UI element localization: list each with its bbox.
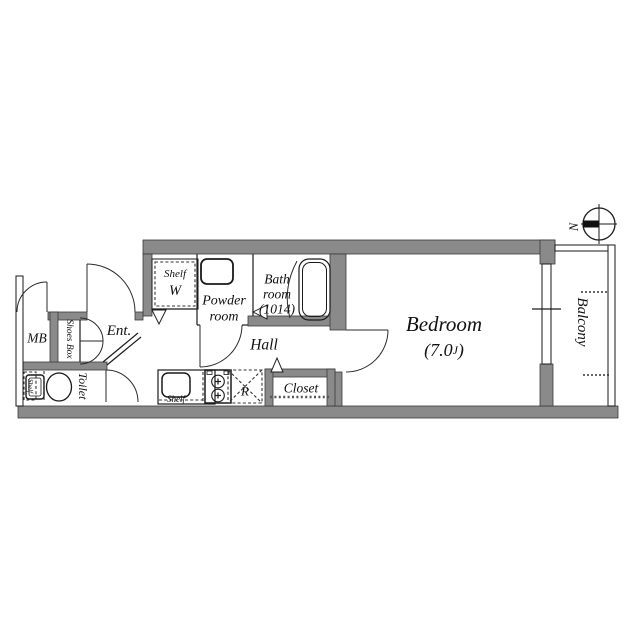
shoes-box-door-arc-upper xyxy=(80,318,103,341)
laundry-threshold-triangle xyxy=(152,310,166,324)
wall-segment-toilet-top xyxy=(18,362,107,370)
wall-segment-window-top-stub xyxy=(540,240,555,264)
entrance-label: Ent. xyxy=(106,323,132,339)
entrance-step-line-b xyxy=(107,337,141,365)
hall-label: Hall xyxy=(249,337,278,354)
bath-room-label-line1: Bath xyxy=(264,272,290,287)
wall-segment-top xyxy=(143,240,555,254)
bath-room-label-line3: (1014) xyxy=(259,302,295,317)
wall-segment-laundry-left xyxy=(143,254,152,316)
bedroom-door-arc xyxy=(346,330,388,372)
wall-segment-closet-right xyxy=(327,369,335,406)
compass-north-pointer xyxy=(583,221,599,228)
shoes-box-label: Shoes Box xyxy=(64,319,74,359)
bath-room-label-line2: room xyxy=(263,287,291,302)
toilet-label: Toilet xyxy=(76,373,90,401)
balcony-wall-right xyxy=(608,245,615,406)
powder-sink xyxy=(201,259,233,284)
laundry-shelf-label: Shelf xyxy=(164,268,188,280)
toilet-door-arc xyxy=(106,370,138,402)
wall-segment-closet-left xyxy=(265,369,273,406)
wall-segment-entry-b xyxy=(135,312,143,320)
wall-segment-mb-right xyxy=(50,312,58,363)
bedroom-label: Bedroom xyxy=(406,312,482,336)
bedroom-size-label: (7.0J) xyxy=(424,340,464,361)
refrigerator-label: R xyxy=(240,384,249,399)
toilet-bowl xyxy=(47,373,72,401)
kitchen-shelf-label: Shelf xyxy=(167,394,186,404)
powder-room-label-line1: Powder xyxy=(201,294,246,309)
washer-label: W xyxy=(169,283,183,299)
meter-box-label: MB xyxy=(26,331,47,346)
wall-segment-bedroom-left-upper xyxy=(330,254,346,330)
window-glass xyxy=(542,264,551,364)
balcony-wall-top xyxy=(555,245,615,251)
compass: N xyxy=(567,204,617,244)
powder-room-door-arc xyxy=(200,325,242,367)
floor-plan-page: N MB Shoes Box Ent. Toilet Shelf Shelf W… xyxy=(0,0,640,640)
entrance-door-arc xyxy=(87,264,135,312)
floor-plan-drawing: N MB Shoes Box Ent. Toilet Shelf Shelf W… xyxy=(0,0,640,640)
bedroom-size-close: ) xyxy=(457,340,464,361)
bathtub-inner xyxy=(303,263,327,317)
closet-label: Closet xyxy=(284,381,320,396)
balcony-label: Balcony xyxy=(574,297,590,346)
toilet-shelf-label: Shelf xyxy=(26,379,34,394)
stove-grate-left xyxy=(207,371,212,375)
compass-north-label: N xyxy=(567,222,581,232)
wall-segment-window-bottom-stub xyxy=(540,364,553,406)
powder-room-label-line2: room xyxy=(209,310,238,325)
shoes-box-door-arc-lower xyxy=(80,341,103,364)
wall-segment-bottom xyxy=(18,406,618,418)
bedroom-size-open: (7.0 xyxy=(424,340,453,361)
closet-threshold-triangle xyxy=(271,358,283,372)
